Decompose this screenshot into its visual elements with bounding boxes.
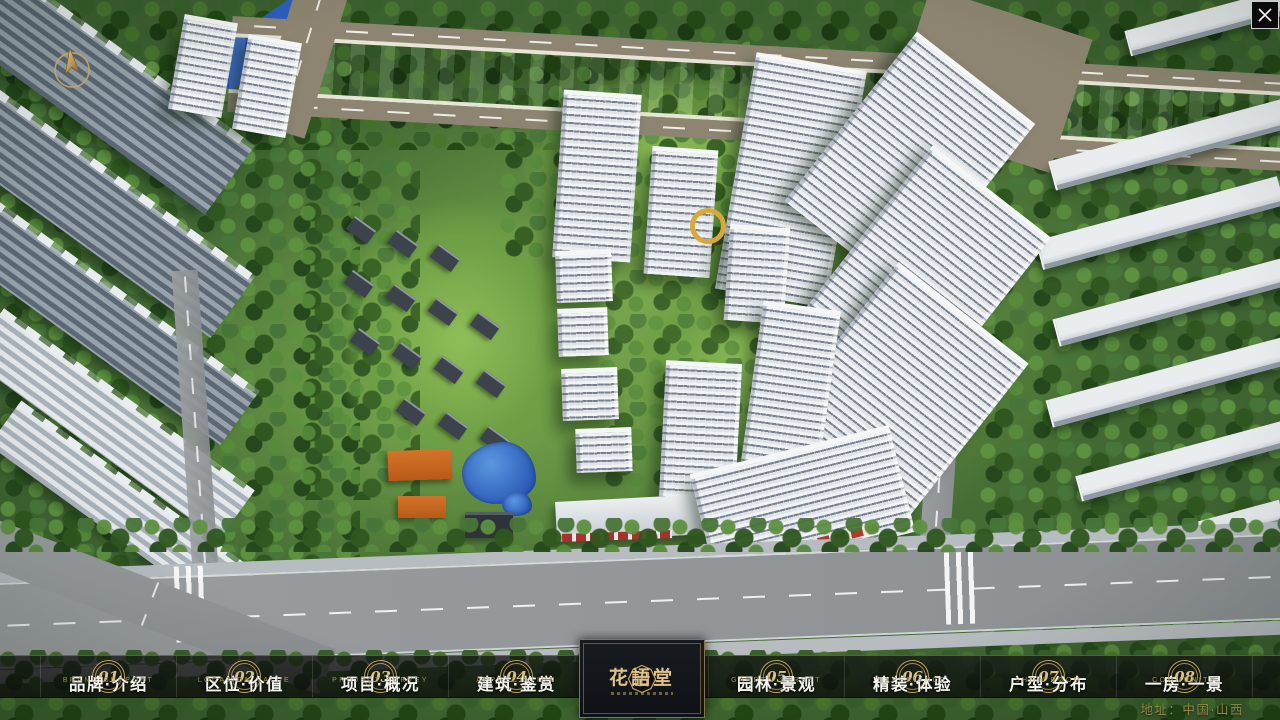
project-logo-panel[interactable]: 花語堂 — [579, 639, 705, 718]
aerial-masterplan-view[interactable] — [0, 0, 1280, 720]
nav-sublabel: SHOW ROOM — [1015, 677, 1082, 684]
close-icon — [1257, 7, 1273, 23]
nav-sublabel: EXPERIENCE — [878, 677, 947, 684]
nav-item-garden[interactable]: 05 园林·景观GARDEN STREET — [708, 656, 844, 697]
nav-sublabel: GARDEN STREET — [731, 677, 822, 684]
nav-item-project[interactable]: 03 项目·概况PROJECT SURVEY — [312, 656, 448, 697]
nav-item-floorplan[interactable]: 07 户型·分布SHOW ROOM — [980, 656, 1116, 697]
nav-sublabel: LOCATION VALUE — [198, 677, 291, 684]
close-button[interactable] — [1251, 1, 1279, 29]
compass-north-icon — [48, 42, 96, 94]
nav-item-location[interactable]: 02 区位·价值LOCATION VALUE — [176, 656, 312, 697]
scene-vignette — [0, 0, 1280, 720]
nav-sublabel: BRAND SUPPORT — [63, 677, 154, 684]
nav-sublabel: PROJECT SURVEY — [332, 677, 429, 684]
logo-title: 花語堂 — [609, 663, 675, 690]
nav-sublabel: COMMUNITY — [1152, 677, 1217, 684]
app-window: 01 品牌·介绍BRAND SUPPORT 02 区位·价值LOCATION V… — [0, 0, 1280, 720]
nav-spacer — [1252, 656, 1280, 697]
nav-spacer — [0, 656, 40, 697]
nav-item-architecture[interactable]: 04 建筑·鉴赏APPRECIATION — [448, 656, 584, 697]
nav-item-brand[interactable]: 01 品牌·介绍BRAND SUPPORT — [40, 656, 176, 697]
nav-item-view[interactable]: 08 一房·一景COMMUNITY — [1116, 656, 1252, 697]
nav-item-interior[interactable]: 06 精装·体验EXPERIENCE — [844, 656, 980, 697]
address-text: 地址：中国·山西 — [1140, 699, 1244, 718]
nav-sublabel: APPRECIATION — [476, 677, 556, 684]
logo-subtext — [611, 692, 673, 695]
